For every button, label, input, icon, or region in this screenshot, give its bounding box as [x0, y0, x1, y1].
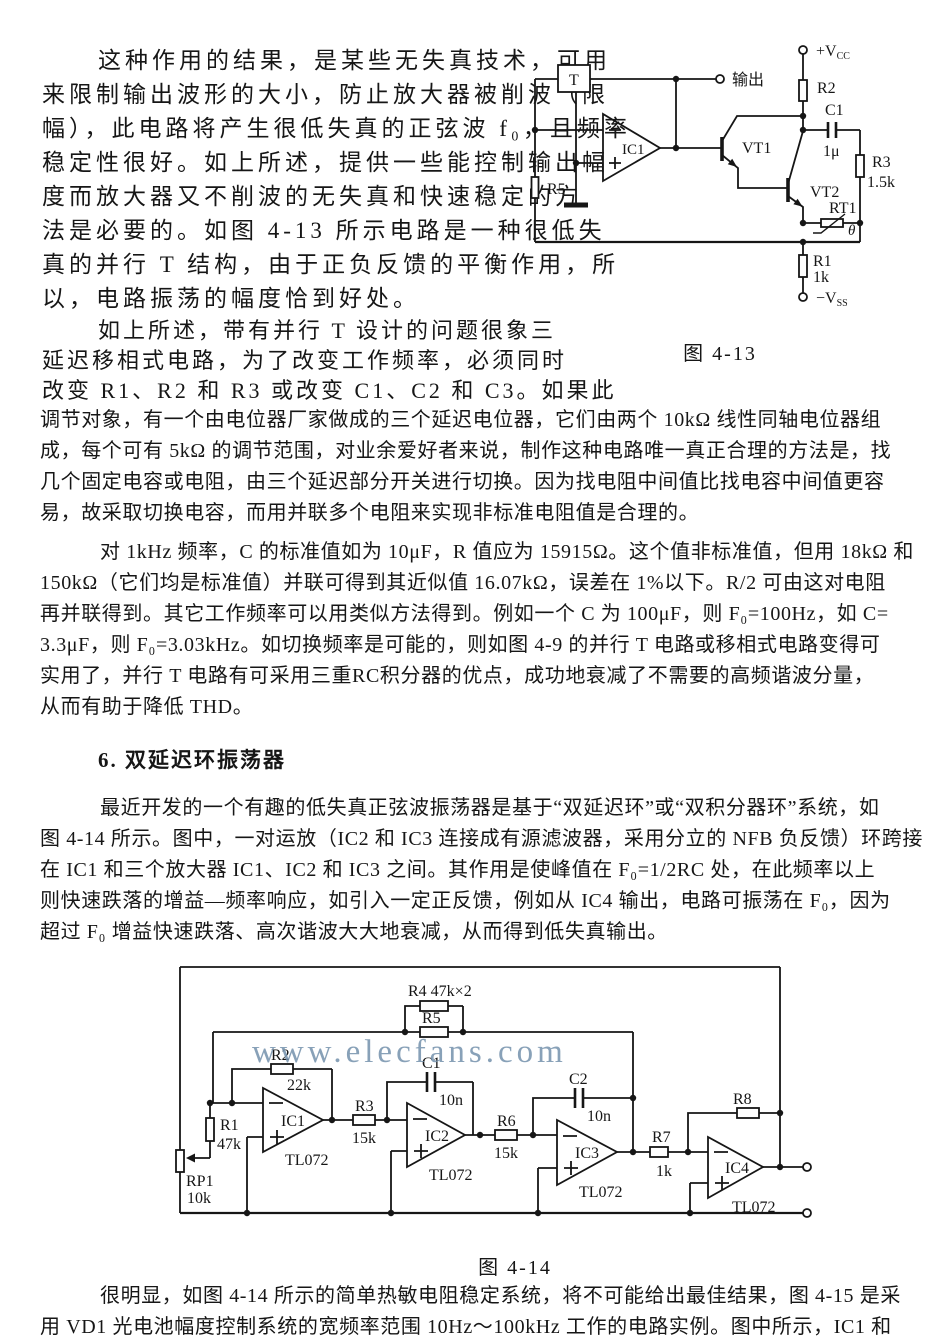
resistor-R3-label: R3 [355, 1098, 374, 1115]
junction-dot [532, 127, 538, 133]
junction-dot [244, 1210, 250, 1216]
resistor-R1-label: R1 [220, 1117, 239, 1134]
opamp-IC4-label: IC4 [725, 1160, 749, 1177]
resistor-R5 [420, 1027, 448, 1037]
resistor-R4-label: R4 47k×2 [408, 983, 472, 1000]
paragraph-3: 对 1kHz 频率，C 的标准值如为 10μF，R 值应为 15915Ω。这个值… [40, 537, 915, 723]
junction-dot [535, 1210, 541, 1216]
junction-dot [388, 1210, 394, 1216]
opamp-IC1-label: IC1 [281, 1113, 305, 1130]
potentiometer-RP1-value: 10k [187, 1190, 211, 1207]
junction-dot [207, 1100, 213, 1106]
resistor-R6-value: 15k [494, 1145, 518, 1162]
text-line: 延迟移相式电路，为了改变工作频率，必须同时 [42, 346, 547, 376]
opamp-IC2-part: TL072 [429, 1167, 473, 1184]
junction-dot [777, 1164, 783, 1170]
text-line: 度而放大器又不削波的无失真和快速稳定的方 [42, 180, 547, 214]
capacitor-C1 [427, 1072, 435, 1092]
wire [391, 1151, 407, 1213]
wiper-arrow [186, 1154, 195, 1163]
capacitor-C2-label: C2 [569, 1071, 588, 1088]
resistor-R5-label: R5 [422, 1010, 441, 1027]
potentiometer-RP1 [176, 1150, 184, 1172]
text-line: 成，每个可有 5kΩ 的调节范围，对业余爱好者来说，制作这种电路唯一真正合理的方… [40, 436, 915, 467]
junction-dot [402, 1029, 408, 1035]
transistor-VT2-collector [788, 131, 803, 184]
vcc-label: +VCC [816, 43, 850, 62]
resistor-R2-label: R2 [271, 1047, 290, 1064]
junction-dot [800, 113, 806, 119]
resistor-R3-label: R3 [872, 154, 891, 171]
text-line: 用 VD1 光电池幅度控制系统的宽频率范围 10Hz～100kHz 工作的电路实… [40, 1312, 920, 1340]
opamp-IC4-part: TL072 [732, 1199, 776, 1216]
capacitor-C2 [575, 1088, 583, 1108]
resistor-R2-label: R2 [817, 80, 836, 97]
junction-dot [673, 145, 679, 151]
resistor-R3-value: 1.5k [867, 174, 895, 191]
output-terminal-top [803, 1163, 811, 1171]
wire [247, 1137, 263, 1213]
text-line: 以，电路振荡的幅度恰到好处。 [42, 282, 547, 316]
figure-4-14-caption: 图 4-14 [430, 1251, 600, 1280]
junction-dot [329, 1117, 335, 1123]
capacitor-C1-value: 10n [439, 1092, 463, 1109]
thermistor-RT1 [821, 219, 843, 227]
text-line: 对 1kHz 频率，C 的标准值如为 10μF，R 值应为 15915Ω。这个值… [40, 537, 915, 568]
section-heading: 6. 双延迟环振荡器 [98, 744, 286, 774]
resistor-R1-label: R1 [813, 253, 832, 270]
resistor-R3-value: 15k [352, 1130, 376, 1147]
theta-symbol: θ [848, 223, 856, 239]
capacitor-C1-value: 1μ [823, 143, 840, 160]
resistor-R2-value: 22k [287, 1077, 311, 1094]
wire [180, 967, 780, 1213]
resistor-R7-value: 1k [656, 1163, 672, 1180]
text-line: 超过 F₀ 增益快速跌落、高次谐波大大地衰减，从而得到低失真输出。 [40, 917, 915, 948]
resistor-R2 [799, 80, 807, 101]
text-line: 很明显，如图 4-14 所示的简单热敏电阻稳定系统，将不可能给出最佳结果，图 4… [40, 1281, 920, 1312]
junction-dot [477, 1132, 483, 1138]
text-line: 图 4-14 所示。图中，一对运放（IC2 和 IC3 连接成有源滤波器，采用分… [40, 824, 915, 855]
output-terminal-bottom [803, 1209, 811, 1217]
resistor-R5 [532, 177, 539, 198]
transistor-VT2-emitter [788, 196, 803, 223]
thermistor-RT1-label: RT1 [829, 200, 856, 217]
output-label: 输出 [732, 71, 764, 89]
junction-dot [630, 1149, 636, 1155]
capacitor-C1 [828, 122, 836, 138]
resistor-R1 [799, 255, 807, 277]
resistor-R5-label: R5 [547, 181, 566, 198]
scanned-book-page: 这种作用的结果，是某些无失真技术，可用来限制输出波形的大小，防止放大器被削波（限… [0, 0, 935, 1340]
text-line: 这种作用的结果，是某些无失真技术，可用 [42, 44, 547, 78]
resistor-R3 [353, 1115, 375, 1125]
figure-4-14-circuit: R4 47k×2 R5 R1 47k RP1 10k R2 22k IC1 TL… [175, 960, 935, 1250]
junction-dot [630, 1095, 636, 1101]
figure-4-13-circuit: R5 T 输出 IC1 VT1 VT2 +VCC [530, 35, 910, 330]
vss-label: −VSS [816, 290, 848, 309]
junction-dot [777, 1110, 783, 1116]
vcc-terminal [799, 46, 807, 54]
capacitor-C2-value: 10n [587, 1108, 611, 1125]
opamp-IC3-part: TL072 [579, 1184, 623, 1201]
text-line: 真的并行 T 结构，由于正负反馈的平衡作用，所 [42, 248, 547, 282]
resistor-R8-label: R8 [733, 1091, 752, 1108]
text-line: 易，故采取切换电容，而用并联多个电阻来实现非标准电阻值是合理的。 [40, 498, 915, 529]
resistor-R7 [650, 1147, 668, 1157]
paragraph-5: 很明显，如图 4-14 所示的简单热敏电阻稳定系统，将不可能给出最佳结果，图 4… [40, 1281, 920, 1340]
resistor-R8 [737, 1108, 759, 1118]
opamp-IC3-label: IC3 [575, 1145, 599, 1162]
text-line: 从而有助于降低 THD。 [40, 692, 915, 723]
resistor-R1 [206, 1118, 214, 1141]
wire [690, 1183, 708, 1213]
text-line: 150kΩ（它们均是标准值）并联可得到其近似值 16.07kΩ，误差在 1%以下… [40, 568, 915, 599]
resistor-R6-label: R6 [497, 1113, 516, 1130]
text-line: 稳定性很好。如上所述，提供一些能控制输出幅 [42, 146, 547, 180]
capacitor-C1-label: C1 [422, 1055, 441, 1072]
junction-dot [687, 1210, 693, 1216]
resistor-R1-value: 47k [217, 1136, 241, 1153]
transistor-VT1-collector [722, 116, 803, 141]
twin-t-label: T [569, 72, 579, 89]
output-terminal [716, 75, 724, 83]
resistor-R2 [271, 1064, 293, 1074]
transistor-VT1-label: VT1 [742, 140, 771, 157]
text-line: 改变 R1、R2 和 R3 或改变 C1、C2 和 C3。如果此 [42, 376, 547, 406]
opamp-IC1-label: IC1 [622, 142, 645, 158]
text-line: 再并联得到。其它工作频率可以用类似方法得到。例如一个 C 为 100μF，则 F… [40, 599, 915, 630]
paragraph-1: 这种作用的结果，是某些无失真技术，可用来限制输出波形的大小，防止放大器被削波（限… [42, 44, 547, 316]
transistor-VT2-label: VT2 [810, 184, 839, 201]
vss-terminal [799, 293, 807, 301]
resistor-R6 [495, 1130, 517, 1140]
wire [538, 1168, 557, 1213]
text-line: 法是必要的。如图 4-13 所示电路是一种很低失 [42, 214, 547, 248]
text-line: 在 IC1 和三个放大器 IC1、IC2 和 IC3 之间。其作用是使峰值在 F… [40, 855, 915, 886]
text-line: 则快速跌落的增益—频率响应，如引入一定正反馈，例如从 IC4 输出，电路可振荡在… [40, 886, 915, 917]
figure-4-13-caption: 图 4-13 [655, 337, 785, 366]
opamp-IC1-part: TL072 [285, 1152, 329, 1169]
text-line: 幅），此电路将产生很低失真的正弦波 f₀，且频率 [42, 112, 547, 146]
paragraph-2-wide: 调节对象，有一个由电位器厂家做成的三个延迟电位器，它们由两个 10kΩ 线性同轴… [40, 405, 915, 529]
text-line: 最近开发的一个有趣的低失真正弦波振荡器是基于“双延迟环”或“双积分器环”系统，如 [40, 793, 915, 824]
wire [688, 1113, 780, 1152]
paragraph-2-narrow: 如上所述，带有并行 T 设计的问题很象三延迟移相式电路，为了改变工作频率，必须同… [42, 316, 547, 406]
text-line: 3.3μF，则 F₀=3.03kHz。如切换频率是可能的，则如图 4-9 的并行… [40, 630, 915, 661]
capacitor-C1-label: C1 [825, 102, 844, 119]
text-line: 几个固定电容或电阻，由三个延迟部分开关进行切换。因为找电阻中间值比找电容中间值更… [40, 467, 915, 498]
text-line: 来限制输出波形的大小，防止放大器被削波（限 [42, 78, 547, 112]
junction-dot [460, 1029, 466, 1035]
opamp-IC2-label: IC2 [425, 1128, 449, 1145]
text-line: 如上所述，带有并行 T 设计的问题很象三 [42, 316, 547, 346]
potentiometer-RP1-label: RP1 [186, 1173, 214, 1190]
resistor-R7-label: R7 [652, 1129, 671, 1146]
text-line: 实用了，并行 T 电路有可采用三重RC积分器的优点，成功地衰减了不需要的高频谐波… [40, 661, 915, 692]
resistor-R1-value: 1k [813, 269, 829, 286]
text-line: 调节对象，有一个由电位器厂家做成的三个延迟电位器，它们由两个 10kΩ 线性同轴… [40, 405, 915, 436]
opamp-IC1-signs [609, 130, 621, 169]
resistor-R3 [856, 155, 864, 177]
paragraph-4: 最近开发的一个有趣的低失真正弦波振荡器是基于“双延迟环”或“双积分器环”系统，如… [40, 793, 915, 948]
